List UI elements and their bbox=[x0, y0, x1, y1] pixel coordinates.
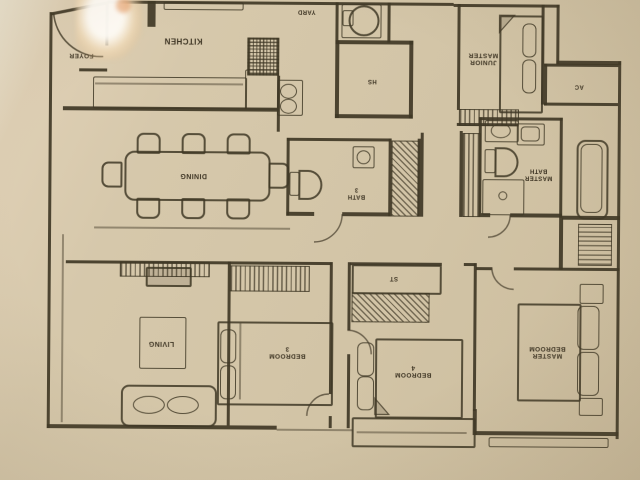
slanted-wall bbox=[51, 2, 109, 14]
room-label-master-bath: MASTERBATH bbox=[525, 167, 553, 181]
room-label-kitchen: KITCHEN bbox=[164, 36, 202, 45]
room-label-household-shelter: HS bbox=[368, 77, 377, 84]
room-label-bedroom-3: BEDROOM3 bbox=[269, 344, 306, 359]
room-label-bath-3: BATH3 bbox=[347, 185, 365, 199]
door-arc-icon bbox=[347, 330, 371, 354]
room-label-dining: DINING bbox=[180, 171, 207, 179]
room-label-ac-ledge: AC bbox=[574, 82, 584, 89]
room-label-yard: YARD bbox=[298, 7, 316, 14]
door-arc-icon bbox=[307, 394, 329, 416]
floorplan-photo: FOYER KITCHEN YARD HS JUNIORMASTER AC MA… bbox=[0, 0, 640, 480]
room-label-store: ST bbox=[389, 274, 398, 281]
room-label-master-bedroom: MASTERBEDROOM bbox=[529, 344, 566, 359]
door-arc-icon bbox=[492, 267, 514, 289]
room-label-foyer: FOYER bbox=[69, 52, 93, 60]
blanket-fold-icon bbox=[375, 398, 389, 414]
room-label-bedroom-4: BEDROOM4 bbox=[395, 363, 432, 378]
door-arcs-layer bbox=[0, 0, 640, 480]
door-arc-icon bbox=[314, 214, 342, 242]
entrance-door-arc-icon bbox=[53, 12, 103, 56]
door-arc-icon bbox=[488, 215, 510, 237]
blanket-fold-icon bbox=[499, 15, 514, 32]
floorplan-drawing: FOYER KITCHEN YARD HS JUNIORMASTER AC MA… bbox=[0, 0, 640, 480]
room-label-living: LIVING bbox=[148, 339, 174, 347]
room-label-junior-master: JUNIORMASTER bbox=[468, 51, 498, 66]
